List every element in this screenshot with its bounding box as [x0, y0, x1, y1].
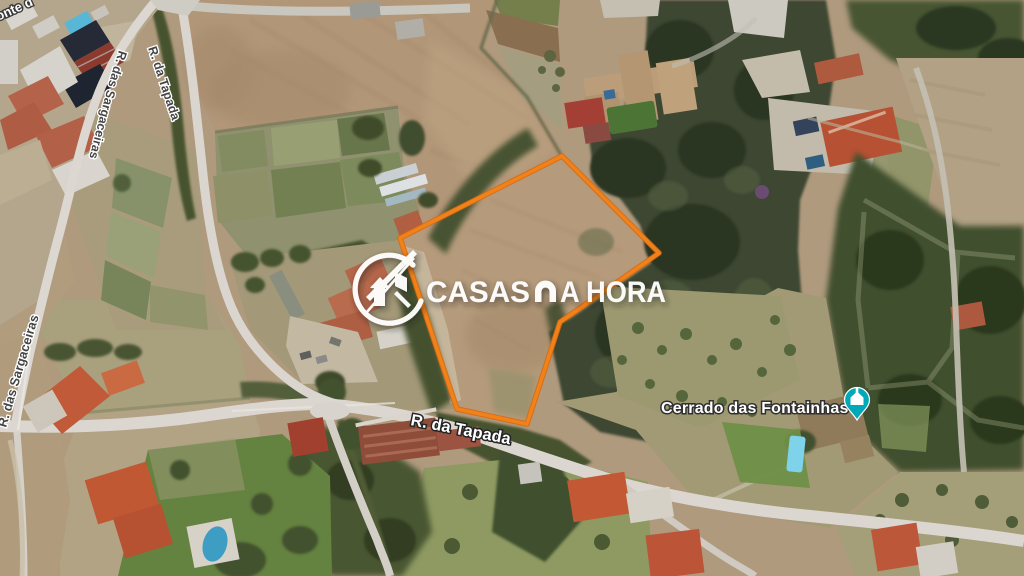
svg-text:Cerrado das Fontainhas: Cerrado das Fontainhas — [661, 400, 849, 417]
svg-text:A HORA: A HORA — [560, 276, 666, 309]
svg-text:CASAS: CASAS — [426, 276, 530, 309]
